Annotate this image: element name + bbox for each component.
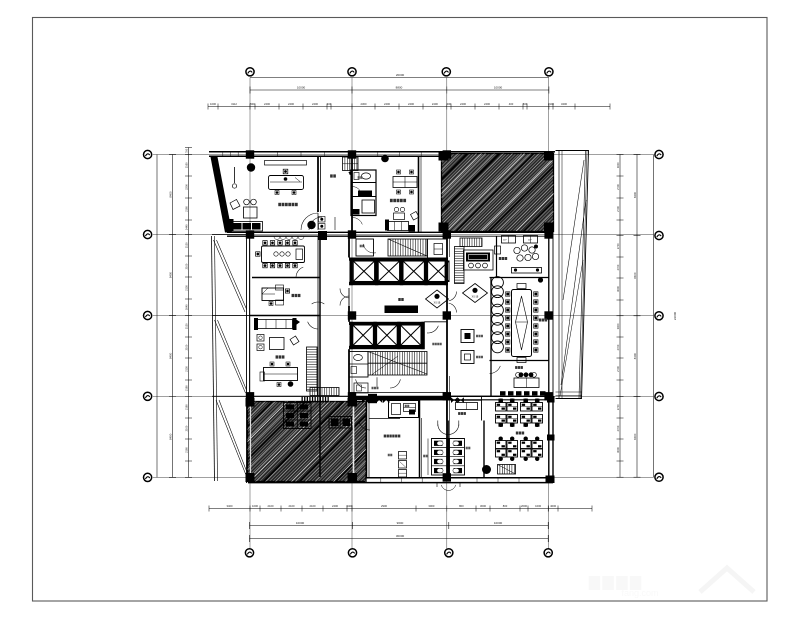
svg-text:2100: 2100 <box>289 504 295 508</box>
svg-text:10000: 10000 <box>494 521 503 525</box>
svg-text:8400: 8400 <box>168 271 172 278</box>
svg-text:3000: 3000 <box>616 162 620 168</box>
svg-text:1000: 1000 <box>210 102 216 106</box>
svg-text:22000: 22000 <box>673 311 677 320</box>
svg-text:10000: 10000 <box>297 86 306 90</box>
svg-text:2400: 2400 <box>264 102 270 106</box>
svg-text:2300: 2300 <box>361 102 367 106</box>
svg-text:2200: 2200 <box>184 184 188 190</box>
svg-text:2700: 2700 <box>616 264 620 270</box>
svg-text:8400: 8400 <box>633 272 637 279</box>
svg-text:2150: 2150 <box>184 285 188 291</box>
svg-text:2400: 2400 <box>408 102 414 106</box>
svg-text:A.P: A.P <box>528 239 532 242</box>
svg-text:3000: 3000 <box>616 323 620 329</box>
svg-text:10000: 10000 <box>494 86 503 90</box>
svg-text:2160: 2160 <box>184 385 188 391</box>
svg-text:2160: 2160 <box>184 162 188 168</box>
svg-text:9600: 9600 <box>397 521 404 525</box>
svg-text:400: 400 <box>327 102 332 106</box>
svg-text:800: 800 <box>503 504 508 508</box>
svg-text:8400: 8400 <box>168 191 172 198</box>
svg-text:2400: 2400 <box>484 102 490 106</box>
svg-text:2400: 2400 <box>460 102 466 106</box>
svg-text:3400: 3400 <box>227 504 233 508</box>
svg-text:2400: 2400 <box>432 102 438 106</box>
svg-text:8400: 8400 <box>633 191 637 198</box>
svg-text:2160: 2160 <box>184 404 188 410</box>
svg-text:6400: 6400 <box>347 504 353 508</box>
svg-text:8400: 8400 <box>633 433 637 440</box>
svg-text:fang.com: fang.com <box>621 588 658 598</box>
svg-text:2000: 2000 <box>521 504 527 508</box>
svg-text:2700: 2700 <box>616 404 620 410</box>
svg-text:8400: 8400 <box>168 433 172 440</box>
svg-text:2100: 2100 <box>184 344 188 350</box>
svg-text:2100: 2100 <box>548 102 554 106</box>
svg-text:2160: 2160 <box>184 447 188 453</box>
svg-text:2700: 2700 <box>616 344 620 350</box>
svg-text:8400: 8400 <box>633 353 637 360</box>
svg-text:2160: 2160 <box>184 206 188 212</box>
svg-text:2400: 2400 <box>288 102 294 106</box>
svg-text:2150: 2150 <box>184 366 188 372</box>
svg-text:2400: 2400 <box>332 504 338 508</box>
svg-text:2700: 2700 <box>616 366 620 372</box>
svg-text:8800: 8800 <box>396 86 403 90</box>
svg-text:2900: 2900 <box>381 504 387 508</box>
svg-text:500: 500 <box>250 102 255 106</box>
svg-text:3000: 3000 <box>428 504 434 508</box>
svg-text:3400: 3400 <box>561 102 567 106</box>
svg-text:1000: 1000 <box>252 504 258 508</box>
svg-text:2100: 2100 <box>184 263 188 269</box>
svg-text:3000: 3000 <box>616 286 620 292</box>
svg-text:XS-1B: XS-1B <box>434 302 441 304</box>
svg-text:A.P: A.P <box>503 239 507 242</box>
svg-text:800: 800 <box>459 504 464 508</box>
svg-text:3000: 3000 <box>480 504 486 508</box>
svg-text:2100: 2100 <box>268 504 274 508</box>
svg-text:3112: 3112 <box>231 102 237 106</box>
svg-text:1440: 1440 <box>184 224 188 230</box>
svg-text:3000: 3000 <box>616 447 620 453</box>
svg-text:700: 700 <box>184 148 188 153</box>
svg-text:2700: 2700 <box>616 206 620 212</box>
svg-text:2100: 2100 <box>184 425 188 431</box>
svg-text:500: 500 <box>523 102 528 106</box>
svg-text:2700: 2700 <box>616 243 620 249</box>
svg-text:2700: 2700 <box>616 184 620 190</box>
svg-text:400: 400 <box>509 102 514 106</box>
svg-text:2150: 2150 <box>184 242 188 248</box>
svg-text:8400: 8400 <box>168 352 172 359</box>
svg-text:400: 400 <box>447 102 452 106</box>
svg-text:30000: 30000 <box>396 534 405 538</box>
svg-text:2150: 2150 <box>184 323 188 329</box>
svg-text:20000: 20000 <box>396 73 405 77</box>
svg-text:1000: 1000 <box>535 504 541 508</box>
svg-text:4000: 4000 <box>550 504 556 508</box>
svg-text:2400: 2400 <box>312 102 318 106</box>
svg-text:XS-1B: XS-1B <box>472 296 479 298</box>
svg-text:10000: 10000 <box>296 521 305 525</box>
svg-text:2700: 2700 <box>616 425 620 431</box>
svg-text:2400: 2400 <box>384 102 390 106</box>
svg-text:2100: 2100 <box>310 504 316 508</box>
svg-text:1640: 1640 <box>184 304 188 310</box>
